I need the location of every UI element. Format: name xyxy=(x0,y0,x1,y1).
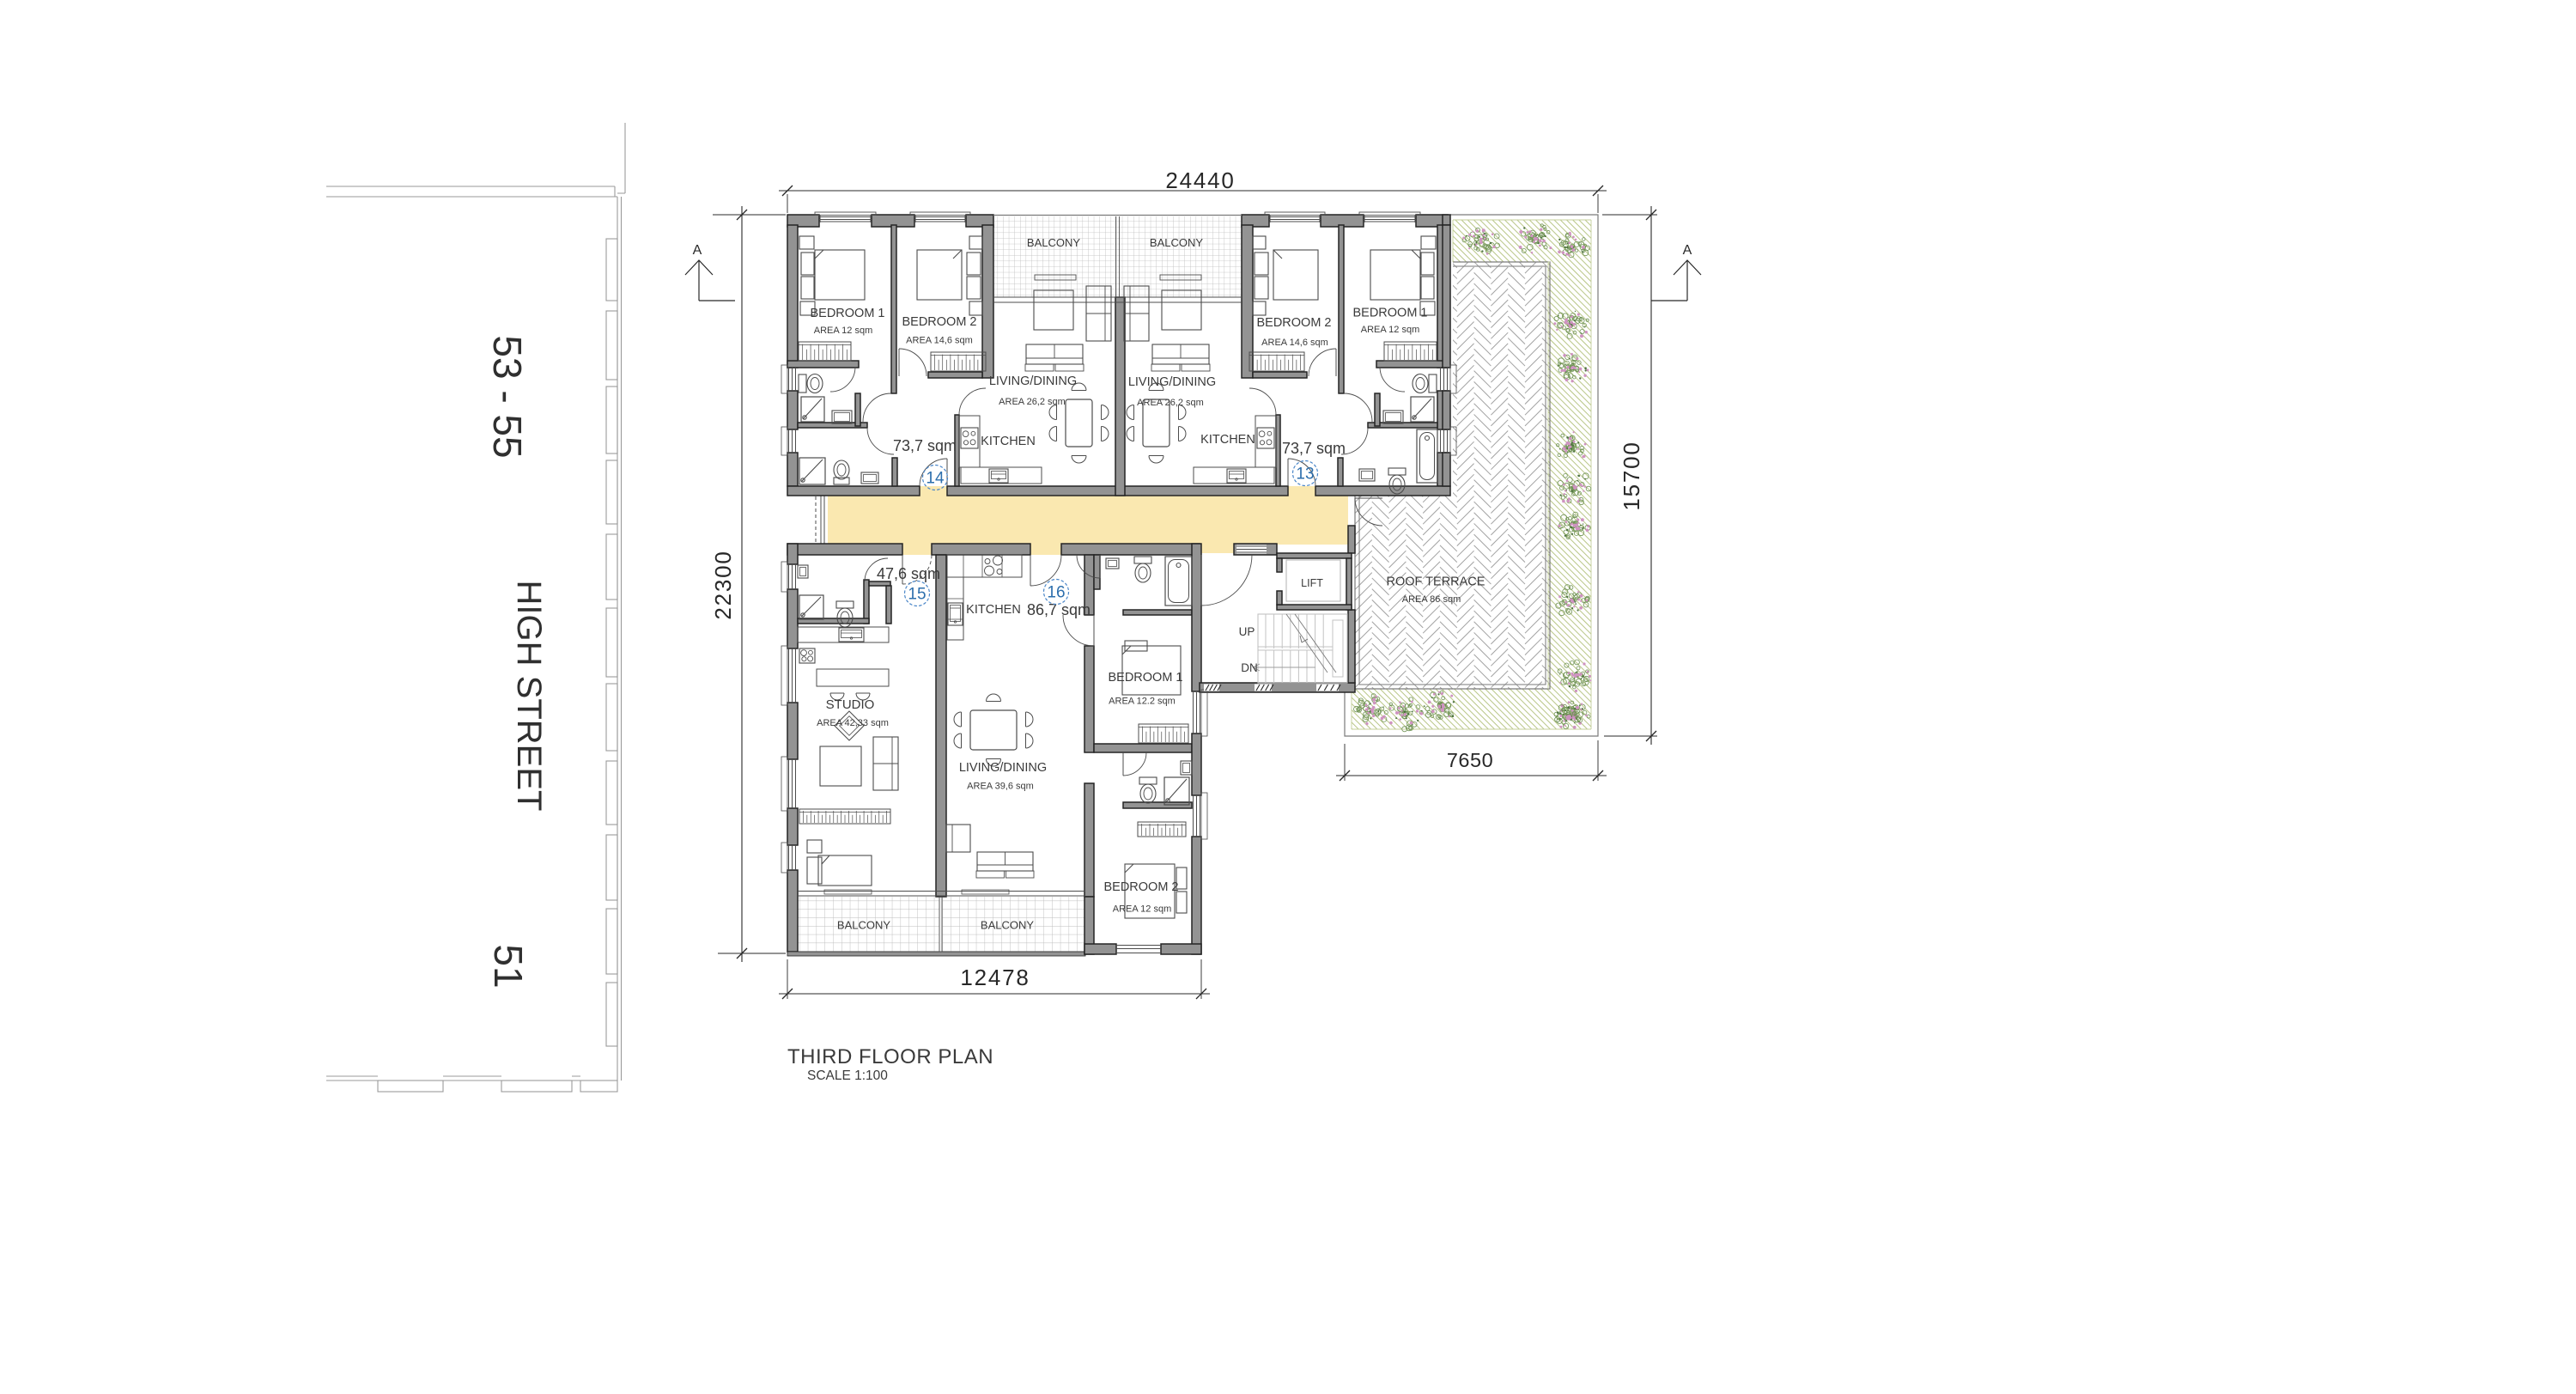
svg-text:LIVING/DINING: LIVING/DINING xyxy=(1128,375,1216,389)
svg-text:THIRD FLOOR PLAN: THIRD FLOOR PLAN xyxy=(787,1045,993,1068)
svg-text:BEDROOM 2: BEDROOM 2 xyxy=(902,315,976,329)
svg-text:BEDROOM 2: BEDROOM 2 xyxy=(1103,880,1178,894)
svg-text:A: A xyxy=(693,243,702,258)
svg-text:14: 14 xyxy=(926,470,945,488)
svg-text:BEDROOM 1: BEDROOM 1 xyxy=(810,307,884,320)
svg-text:AREA 26,2 sqm: AREA 26,2 sqm xyxy=(999,397,1066,407)
svg-text:BALCONY: BALCONY xyxy=(1027,236,1080,249)
svg-text:BEDROOM 1: BEDROOM 1 xyxy=(1352,307,1427,320)
svg-text:AREA 12 sqm: AREA 12 sqm xyxy=(814,326,872,336)
svg-text:BALCONY: BALCONY xyxy=(1150,236,1203,249)
svg-text:LIFT: LIFT xyxy=(1301,577,1323,589)
svg-text:A: A xyxy=(1683,243,1692,258)
svg-text:53 - 55: 53 - 55 xyxy=(485,335,530,458)
svg-text:AREA 12 sqm: AREA 12 sqm xyxy=(1113,904,1171,915)
svg-text:ROOF TERRACE: ROOF TERRACE xyxy=(1387,575,1485,589)
svg-text:15: 15 xyxy=(908,586,926,604)
svg-text:LIVING/DINING: LIVING/DINING xyxy=(959,761,1047,775)
svg-text:AREA 42,33 sqm: AREA 42,33 sqm xyxy=(817,718,889,728)
svg-text:AREA 39,6 sqm: AREA 39,6 sqm xyxy=(967,782,1034,792)
svg-text:51: 51 xyxy=(486,944,531,988)
svg-text:UP: UP xyxy=(1239,625,1255,638)
svg-text:16: 16 xyxy=(1047,584,1065,602)
svg-text:73,7 sqm: 73,7 sqm xyxy=(1282,440,1346,457)
svg-text:AREA 26,2 sqm: AREA 26,2 sqm xyxy=(1137,398,1204,408)
svg-text:KITCHEN: KITCHEN xyxy=(966,603,1021,617)
svg-text:LIVING/DINING: LIVING/DINING xyxy=(989,374,1077,388)
svg-text:AREA 14,6 sqm: AREA 14,6 sqm xyxy=(1261,338,1328,348)
svg-text:AREA 14,6 sqm: AREA 14,6 sqm xyxy=(906,336,973,346)
svg-text:12478: 12478 xyxy=(960,965,1030,990)
svg-text:22300: 22300 xyxy=(710,550,736,619)
svg-text:KITCHEN: KITCHEN xyxy=(981,435,1036,448)
svg-text:AREA 12.2 sqm: AREA 12.2 sqm xyxy=(1109,697,1176,707)
svg-text:BALCONY: BALCONY xyxy=(981,919,1034,932)
svg-text:AREA 12 sqm: AREA 12 sqm xyxy=(1361,325,1419,335)
svg-text:SCALE 1:100: SCALE 1:100 xyxy=(807,1068,888,1083)
svg-text:DN: DN xyxy=(1241,661,1258,674)
svg-text:7650: 7650 xyxy=(1447,749,1493,771)
svg-text:AREA 86 sqm: AREA 86 sqm xyxy=(1402,594,1461,605)
svg-text:BEDROOM 2: BEDROOM 2 xyxy=(1256,316,1331,330)
svg-text:15700: 15700 xyxy=(1619,441,1644,510)
svg-text:STUDIO: STUDIO xyxy=(826,697,875,712)
svg-text:13: 13 xyxy=(1296,466,1314,484)
svg-text:HIGH STREET: HIGH STREET xyxy=(510,581,548,812)
svg-text:47,6 sqm: 47,6 sqm xyxy=(877,565,940,582)
svg-text:BEDROOM 1: BEDROOM 1 xyxy=(1108,671,1182,685)
svg-text:KITCHEN: KITCHEN xyxy=(1200,433,1255,447)
svg-text:24440: 24440 xyxy=(1165,167,1235,193)
svg-text:BALCONY: BALCONY xyxy=(837,919,890,932)
svg-text:73,7 sqm: 73,7 sqm xyxy=(893,437,957,454)
